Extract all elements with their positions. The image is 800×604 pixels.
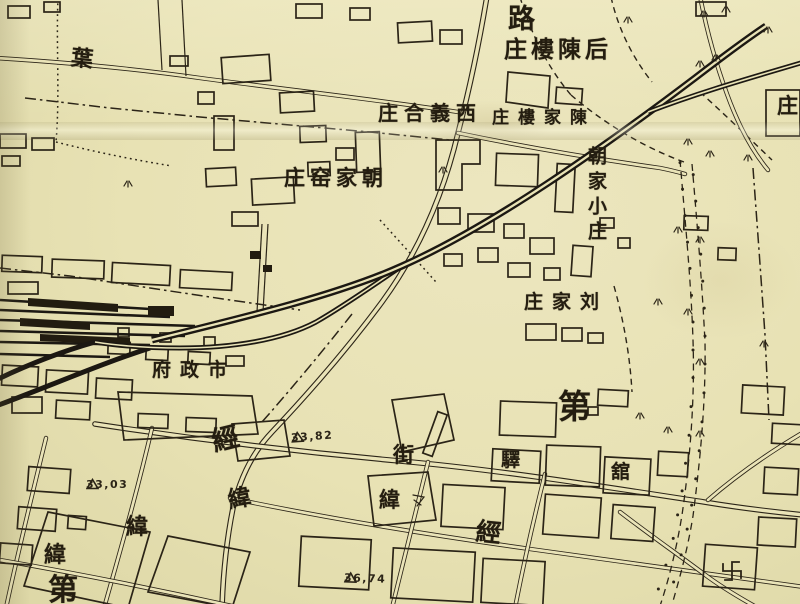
building-outlines — [440, 30, 462, 44]
wei-road-label: 緯 — [126, 516, 148, 538]
village-label-chenjialouzhuang: 庄樓家陳 — [492, 110, 596, 127]
vegetation-symbol — [696, 431, 704, 437]
triangulation-icon — [86, 478, 99, 490]
vegetation-symbol — [696, 61, 704, 67]
boundary-lines — [753, 168, 769, 420]
building-outlines — [530, 238, 554, 254]
building-outlines — [336, 148, 354, 160]
road-lines — [158, 0, 162, 70]
avenue-tree-dot — [703, 307, 706, 310]
boundary-lines — [700, 92, 772, 160]
building-outlines — [544, 268, 560, 280]
avenue-tree-dot — [679, 161, 682, 164]
building-outlines — [214, 116, 234, 150]
building-outlines — [300, 126, 327, 143]
building-outlines — [618, 238, 630, 248]
vegetation-symbol — [674, 227, 682, 233]
avenue-tree-dot — [690, 504, 693, 507]
railway-lines — [148, 306, 174, 316]
avenue-tree-dot — [672, 581, 675, 584]
avenue-tree-dot — [684, 214, 687, 217]
building-outlines — [180, 270, 233, 291]
avenue-tree-dot — [701, 280, 704, 283]
building-outlines — [221, 54, 271, 83]
avenue-tree-dot — [681, 188, 684, 191]
avenue-tree-dot — [676, 513, 679, 516]
wei-road-label: 緯 — [379, 489, 400, 510]
avenue-tree-dot — [686, 241, 689, 244]
avenue-tree-dot — [688, 434, 691, 437]
vegetation-symbol — [744, 155, 752, 161]
road-lines — [515, 474, 545, 604]
building-outlines — [718, 248, 736, 261]
building-outlines — [8, 282, 38, 294]
edge-label-zhuang: 庄 — [777, 95, 798, 116]
boundary-lines — [614, 286, 632, 392]
avenue-tree-dot — [697, 226, 700, 229]
road-name-label: 路 — [508, 6, 535, 33]
village-label-yaozhuang: 庄窑家朝 — [284, 167, 388, 188]
boundary-lines — [611, 0, 652, 82]
avenue-tree-dot — [702, 391, 705, 394]
building-outlines — [763, 467, 798, 495]
building-outlines — [423, 412, 447, 457]
railway-lines — [28, 298, 118, 312]
building-outlines — [543, 494, 602, 538]
avenue-tree-dot — [704, 335, 707, 338]
avenue-tree-dot — [692, 376, 695, 379]
avenue-tree-dot — [692, 173, 695, 176]
building-outlines — [263, 265, 272, 272]
village-label-liujiazhuang: 庄家刘 — [524, 293, 608, 312]
building-outlines — [32, 138, 54, 150]
building-outlines — [112, 262, 171, 285]
village-label-houchenlouzhuang: 庄樓陳后 — [504, 38, 612, 61]
avenue-tree-dot — [698, 449, 701, 452]
vegetation-symbol — [706, 151, 714, 157]
building-outlines — [588, 333, 603, 343]
building-outlines — [279, 91, 314, 113]
boundary-lines — [56, 0, 58, 142]
building-outlines — [2, 156, 20, 166]
building-outlines — [657, 451, 688, 477]
road-lines — [182, 0, 186, 76]
avenue-tree-dot — [657, 587, 660, 590]
building-outlines — [504, 224, 524, 238]
boundary-lines — [262, 314, 352, 422]
vegetation-symbol — [124, 181, 132, 187]
street-label-yi: 驛 — [501, 451, 520, 470]
elevation-marker: 33,03 — [86, 478, 128, 491]
road-lines — [230, 498, 800, 587]
edge-label-ye: 葉 — [70, 47, 94, 71]
building-outlines — [296, 4, 322, 18]
village-label-xiaozhuang: 朝家小庄 — [586, 146, 605, 246]
building-outlines — [506, 72, 550, 108]
building-outlines — [96, 378, 133, 400]
building-outlines — [52, 259, 105, 279]
railway-main-line — [152, 26, 766, 340]
temple-building — [703, 544, 758, 590]
railway-lines — [0, 310, 170, 317]
di-label-large: 第 — [558, 390, 591, 423]
wei-road-label: 緯 — [44, 544, 66, 566]
avenue-tree-dot — [686, 528, 689, 531]
building-outlines — [0, 134, 26, 148]
vegetation-symbol — [664, 427, 672, 433]
building-outlines — [571, 245, 593, 276]
avenue-tree-dot — [664, 564, 667, 567]
di-label-clipped: 第 — [48, 576, 78, 604]
railway-lines — [0, 26, 800, 406]
building-outlines — [250, 251, 261, 259]
building-outlines — [526, 324, 556, 340]
building-outlines — [56, 400, 91, 420]
boundary-lines — [56, 142, 172, 166]
railway-lines — [20, 318, 90, 330]
village-label-xiyihezhuang: 庄合義西 — [378, 103, 482, 123]
main-diagonal-road — [222, 0, 487, 604]
vegetation-symbol — [684, 139, 692, 145]
building-outlines — [499, 401, 556, 437]
avenue-tree-dot — [690, 294, 693, 297]
building-outlines — [562, 328, 582, 341]
building-outlines — [757, 517, 796, 547]
building-outlines — [397, 21, 432, 43]
building-outlines — [598, 389, 629, 407]
map-linework-layer — [0, 0, 800, 604]
avenue-tree-dot — [680, 553, 683, 556]
street-label-jie: 街 — [393, 444, 414, 465]
building-outlines — [481, 558, 545, 604]
building-outlines — [350, 8, 370, 20]
building-outlines — [206, 167, 237, 187]
building-outlines — [232, 212, 258, 226]
building-outlines — [741, 385, 784, 415]
building-outlines — [478, 248, 498, 262]
road-lines — [222, 0, 487, 604]
vegetation-symbol — [722, 7, 730, 13]
building-outlines — [444, 254, 462, 266]
avenue-tree-dot — [689, 267, 692, 270]
avenue-tree-dot — [672, 537, 675, 540]
avenue-tree-dot — [681, 489, 684, 492]
avenue-tree-dot — [684, 462, 687, 465]
vegetation-symbol — [696, 237, 704, 243]
street-label-guan: 舘 — [611, 463, 630, 482]
vegetation-symbol — [624, 17, 632, 23]
city-government-label: 府政市 — [152, 361, 236, 380]
building-outlines — [148, 536, 250, 604]
building-outlines — [495, 153, 538, 186]
vegetation-symbol — [760, 341, 768, 347]
avenue-tree-dot — [690, 405, 693, 408]
vegetation-symbol — [696, 359, 704, 365]
road-lines — [620, 512, 758, 604]
elevation-marker: 36,74 — [344, 571, 387, 585]
building-outlines — [508, 263, 530, 277]
avenue-tree-dot — [694, 477, 697, 480]
avenue-tree-dot — [699, 253, 702, 256]
avenue-tree-dot — [694, 200, 697, 203]
building-outlines — [198, 92, 214, 104]
road-lines — [257, 224, 262, 312]
avenue-tree-dot — [692, 321, 695, 324]
vegetation-symbol — [654, 299, 662, 305]
avenue-tree-dot — [700, 420, 703, 423]
building-outlines — [555, 87, 582, 105]
triangulation-icon — [291, 431, 305, 444]
map-canvas[interactable]: 路 庄樓陳后 庄合義西 庄樓家陳 庄窑家朝 朝家小庄 庄家刘 府政市 經 緯 緯… — [0, 0, 800, 604]
triangulation-icon — [344, 571, 357, 583]
vegetation-symbol — [636, 413, 644, 419]
jing-road-label: 經 — [475, 519, 502, 546]
building-outlines — [8, 6, 30, 18]
vegetation-symbol — [684, 309, 692, 315]
railway-lines — [152, 26, 766, 340]
building-outlines — [438, 208, 460, 224]
wei-road-label: 緯 — [226, 485, 253, 512]
tree-lined-avenue — [657, 160, 707, 604]
avenue-tree-dot — [692, 349, 695, 352]
